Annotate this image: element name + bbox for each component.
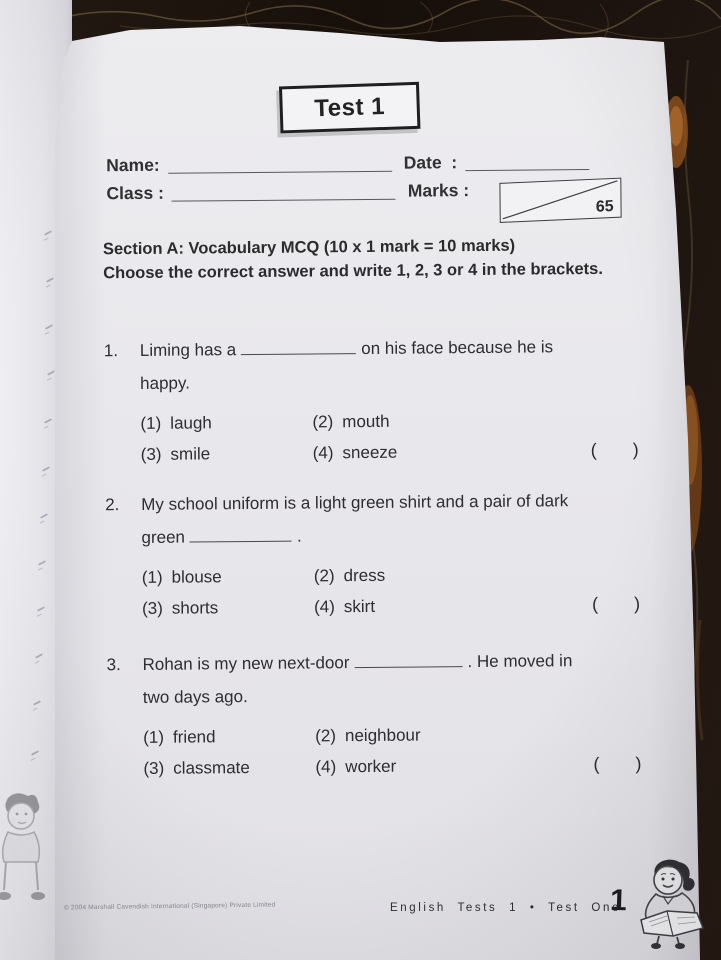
answer-blank: [241, 341, 356, 355]
marks-total: 65: [596, 198, 614, 217]
answer-blank: [190, 529, 292, 543]
class-label: Class :: [106, 183, 164, 205]
option-2: (2)neighbour: [315, 720, 421, 752]
page-edge-mark: [46, 277, 54, 283]
header-fields: Name: Date : Class : Marks : 65: [106, 144, 629, 205]
option-3: (3)classmate: [143, 751, 315, 783]
date-label: Date :: [404, 152, 458, 173]
section-instructions: Choose the correct answer and write 1, 2…: [103, 257, 603, 285]
question-3: 3. Rohan is my new next-door. He moved i…: [106, 644, 634, 785]
option-4: (4)worker: [315, 751, 396, 783]
question-text: My school uniform is a light green shirt…: [141, 484, 633, 554]
option-4: (4)skirt: [314, 591, 375, 623]
answer-brackets: ( ): [593, 749, 641, 780]
page-edge-mark: [31, 750, 39, 756]
page-number: 1: [609, 884, 627, 919]
page-edge-mark: [37, 606, 45, 612]
option-1: (1)friend: [143, 720, 315, 752]
test-title-box: Test 1: [279, 82, 420, 134]
answer-blank: [354, 654, 462, 668]
marks-score-box: 65: [499, 178, 621, 223]
question-text: Liming has aon his face because he is ha…: [140, 330, 632, 400]
question-number: 2.: [105, 488, 142, 554]
page-edge-mark: [42, 466, 50, 472]
section-a-header: Section A: Vocabulary MCQ (10 x 1 mark =…: [103, 234, 603, 285]
name-blank-line: [168, 152, 392, 174]
answer-brackets: ( ): [592, 589, 640, 620]
page-edge-mark: [45, 324, 53, 330]
test-title: Test 1: [314, 93, 385, 122]
question-number: 1.: [104, 334, 141, 400]
class-blank-line: [172, 180, 396, 202]
answer-brackets: ( ): [591, 435, 639, 466]
running-title: English Tests 1 • Test One: [390, 902, 621, 914]
options-grid: (1)blouse (2)dress (3)shorts (4)skirt ( …: [142, 558, 634, 624]
page-edge-mark: [44, 418, 52, 424]
option-1: (1)laugh: [140, 406, 312, 438]
page-edge-mark: [44, 230, 52, 236]
option-1: (1)blouse: [142, 560, 314, 592]
options-grid: (1)laugh (2)mouth (3)smile (4)sneeze ( ): [140, 404, 632, 470]
question-text-line2: two days ago.: [143, 677, 634, 714]
question-text-line2: green.: [141, 517, 632, 554]
date-blank-line: [465, 150, 589, 171]
page-edge-mark: [47, 370, 55, 376]
question-number: 3.: [106, 648, 143, 714]
photo-of-test-page: Test 1 Name: Date : Class : Marks : 65: [0, 0, 721, 960]
option-2: (2)mouth: [312, 406, 389, 438]
marks-label: Marks :: [408, 180, 469, 202]
page-edge-mark: [38, 560, 46, 566]
option-4: (4)sneeze: [313, 437, 398, 469]
name-date-row: Name: Date :: [106, 144, 629, 177]
test-content: Test 1 Name: Date : Class : Marks : 65: [94, 82, 636, 887]
page-edge-mark: [33, 700, 41, 706]
option-3: (3)smile: [141, 437, 313, 469]
options-grid: (1)friend (2)neighbour (3)classmate (4)w…: [143, 718, 635, 784]
page-edge-mark: [35, 653, 43, 659]
question-1: 1. Liming has aon his face because he is…: [104, 330, 632, 471]
question-2: 2. My school uniform is a light green sh…: [105, 484, 633, 625]
option-2: (2)dress: [314, 560, 386, 592]
girl-reading-illustration: [633, 856, 707, 950]
option-3: (3)shorts: [142, 591, 314, 623]
name-label: Name:: [106, 155, 160, 176]
child-illustration-faint: [0, 790, 60, 915]
question-text-line2: happy.: [140, 363, 631, 400]
question-text: Rohan is my new next-door. He moved in t…: [142, 644, 634, 714]
page-edge-mark: [40, 513, 48, 519]
